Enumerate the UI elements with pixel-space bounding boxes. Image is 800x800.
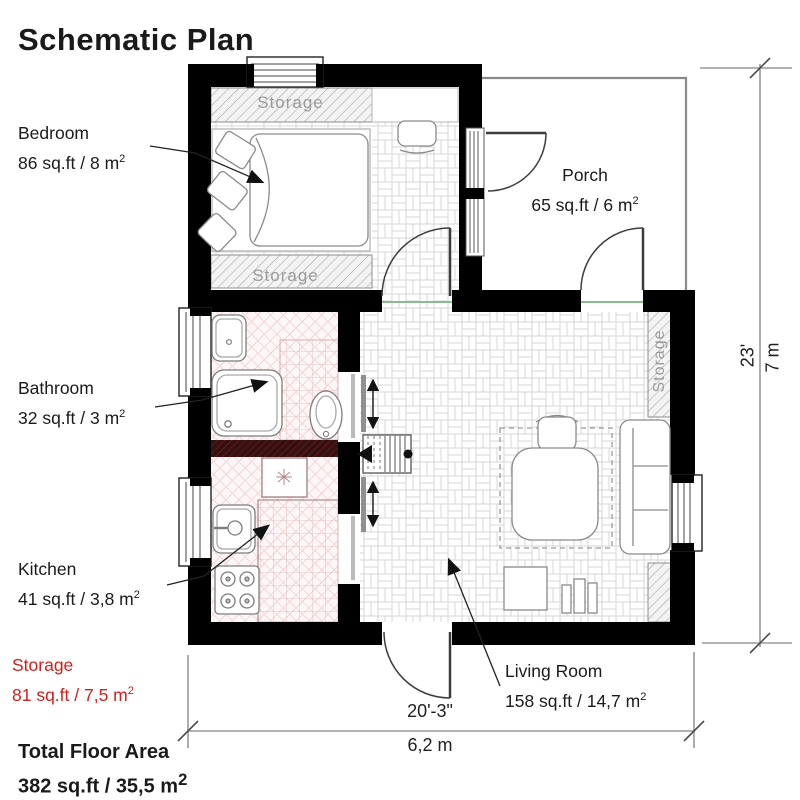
dim-width-imperial: 20'-3" bbox=[360, 701, 500, 722]
dim-height-imperial: 23' bbox=[738, 316, 759, 396]
porch-south-door bbox=[581, 228, 643, 290]
wall-bedroom-south-b bbox=[452, 290, 482, 312]
porch-label: Porch 65 sq.ft / 6 m2 bbox=[510, 162, 660, 218]
porch-area: 65 sq.ft / 6 m2 bbox=[510, 188, 660, 218]
bed-blanket bbox=[250, 134, 368, 246]
shower-drain bbox=[225, 421, 231, 427]
storage-label: Storage 81 sq.ft / 7,5 m2 bbox=[12, 652, 134, 708]
living-right-window bbox=[672, 475, 702, 551]
bedroom-name: Bedroom bbox=[18, 120, 125, 146]
wall-right-a bbox=[670, 290, 695, 475]
sofa bbox=[620, 420, 670, 554]
living-room-area: 158 sq.ft / 14,7 m2 bbox=[505, 684, 646, 714]
bedroom-top-window bbox=[247, 57, 323, 87]
shelf-item-1 bbox=[562, 585, 571, 613]
stove bbox=[215, 566, 259, 614]
kitchen-pocket-door bbox=[351, 516, 355, 580]
wall-interior-b bbox=[338, 442, 360, 514]
tv-stand bbox=[504, 567, 547, 610]
stair-newel bbox=[404, 450, 413, 459]
bathroom-name: Bathroom bbox=[18, 375, 125, 401]
storage-tag-right: Storage bbox=[651, 311, 669, 411]
wall-living-top-a bbox=[482, 290, 581, 312]
bedroom-label: Bedroom 86 sq.ft / 8 m2 bbox=[18, 120, 125, 176]
storage-name: Storage bbox=[12, 652, 134, 678]
total-label: Total Floor Area bbox=[18, 738, 187, 766]
schematic-plan-page: Schematic Plan Bedroom 86 sq.ft / 8 m2 P… bbox=[0, 0, 800, 800]
kitchen-name: Kitchen bbox=[18, 556, 140, 582]
shelf-item-2 bbox=[574, 579, 585, 613]
wall-top bbox=[188, 64, 482, 87]
kitchen-tile-zone bbox=[258, 500, 338, 622]
shelf-item-3 bbox=[588, 583, 597, 613]
total-value: 382 sq.ft / 35,5 m2 bbox=[18, 766, 187, 800]
table bbox=[512, 448, 598, 540]
bedroom-bench bbox=[398, 121, 436, 146]
bathroom-area: 32 sq.ft / 3 m2 bbox=[18, 401, 125, 431]
kitchen-window bbox=[179, 478, 211, 566]
wall-bottom-b bbox=[452, 622, 695, 645]
bathroom-pocket-door bbox=[351, 374, 355, 438]
living-room-label: Living Room 158 sq.ft / 14,7 m2 bbox=[505, 658, 646, 714]
porch-name: Porch bbox=[510, 162, 660, 188]
wall-interior-c bbox=[338, 584, 360, 627]
page-title: Schematic Plan bbox=[18, 22, 254, 58]
storage-tag-top: Storage bbox=[238, 93, 343, 113]
bedroom-porch-glazing bbox=[464, 128, 484, 256]
wall-bedroom-south-a bbox=[188, 290, 382, 312]
wall-bottom-a bbox=[188, 622, 382, 645]
dim-width-metric: 6,2 m bbox=[360, 735, 500, 756]
bedroom-brick-band-top bbox=[211, 122, 372, 129]
faucet bbox=[228, 521, 242, 535]
kitchen-label: Kitchen 41 sq.ft / 3,8 m2 bbox=[18, 556, 140, 612]
dim-height-metric: 7 m bbox=[763, 318, 784, 398]
wall-interior-a bbox=[338, 312, 360, 372]
bedroom-area: 86 sq.ft / 8 m2 bbox=[18, 146, 125, 176]
closet-top-right bbox=[372, 88, 458, 122]
kitchen-area: 41 sq.ft / 3,8 m2 bbox=[18, 582, 140, 612]
bathroom-window bbox=[179, 308, 211, 396]
wall-bath-kitchen-divider bbox=[211, 440, 338, 457]
living-room-name: Living Room bbox=[505, 658, 646, 684]
storage-tag-bottom: Storage bbox=[233, 266, 338, 286]
front-door bbox=[384, 632, 450, 698]
chair bbox=[538, 417, 576, 450]
wall-right-b bbox=[670, 550, 695, 645]
storage-corner-bottom-right bbox=[648, 563, 672, 622]
storage-area: 81 sq.ft / 7,5 m2 bbox=[12, 678, 134, 708]
bathroom-label: Bathroom 32 sq.ft / 3 m2 bbox=[18, 375, 125, 431]
total-floor-area: Total Floor Area 382 sq.ft / 35,5 m2 bbox=[18, 738, 187, 800]
